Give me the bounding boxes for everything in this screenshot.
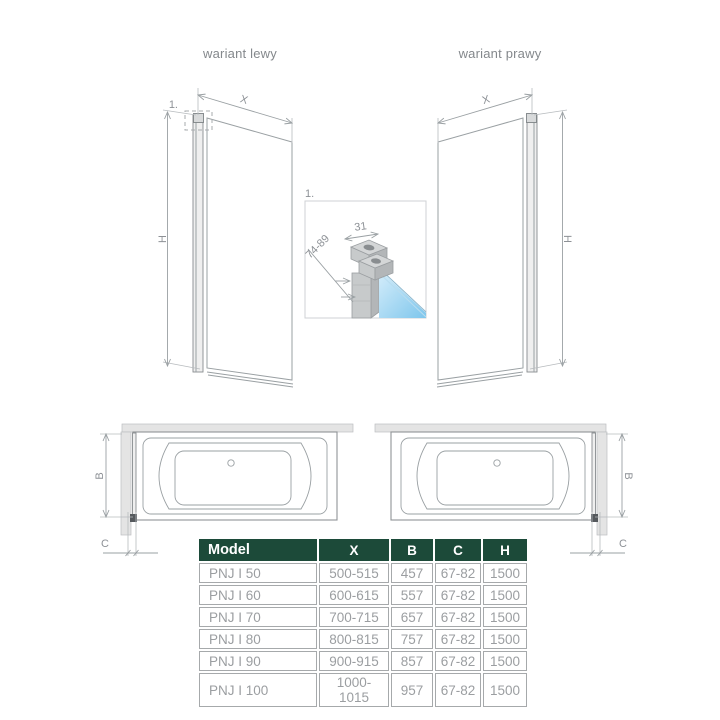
- tub-width-label: B: [622, 472, 634, 479]
- extension-line: [534, 110, 567, 115]
- spec-table: Model X B C H PNJ I 50 500-515 457 67-82…: [197, 537, 529, 709]
- c-cell: 67-82: [435, 673, 481, 707]
- spec-header-c: C: [435, 539, 481, 561]
- c-cell: 67-82: [435, 607, 481, 627]
- b-cell: 457: [391, 563, 433, 583]
- model-cell: PNJ I 70: [199, 607, 317, 627]
- spec-header-x: X: [319, 539, 389, 561]
- model-cell: PNJ I 80: [199, 629, 317, 649]
- profile-bar-front-face: [352, 273, 371, 318]
- bathtub-outline: [133, 432, 337, 520]
- bathtub-outline: [391, 432, 595, 520]
- x-cell: 900-915: [319, 651, 389, 671]
- left-variant-label: wariant lewy: [150, 46, 330, 61]
- width-dimension-label: X: [239, 93, 250, 107]
- table-row: PNJ I 100 1000-1015 957 67-82 1500: [199, 673, 527, 707]
- height-dimension-label: H: [157, 235, 169, 243]
- glass-panel: [207, 118, 292, 380]
- wall-profile: [527, 115, 537, 372]
- depth-range-label: 74-89: [304, 233, 332, 261]
- model-cell: PNJ I 90: [199, 651, 317, 671]
- detail-callout-label: 1.: [169, 99, 178, 111]
- x-cell: 1000-1015: [319, 673, 389, 707]
- x-cell: 700-715: [319, 607, 389, 627]
- wall-profile: [193, 115, 203, 372]
- wall-strip-top: [375, 424, 606, 432]
- technical-drawing-page: wariant lewy wariant prawy H X 1. H: [0, 0, 720, 720]
- c-cell: 67-82: [435, 563, 481, 583]
- table-row: PNJ I 50 500-515 457 67-82 1500: [199, 563, 527, 583]
- detail-ref-label: 1.: [305, 188, 314, 200]
- h-cell: 1500: [483, 607, 527, 627]
- table-row: PNJ I 90 900-915 857 67-82 1500: [199, 651, 527, 671]
- table-row: PNJ I 60 600-615 557 67-82 1500: [199, 585, 527, 605]
- h-cell: 1500: [483, 563, 527, 583]
- x-cell: 800-815: [319, 629, 389, 649]
- left-panel-drawing: H X 1.: [90, 85, 300, 400]
- wall-strip-top: [122, 424, 353, 432]
- spec-header-h: H: [483, 539, 527, 561]
- profile-width-dimension-line: [345, 234, 378, 239]
- b-cell: 857: [391, 651, 433, 671]
- spec-header-row: Model X B C H: [199, 539, 527, 561]
- glass-panel: [438, 118, 523, 380]
- model-cell: PNJ I 60: [199, 585, 317, 605]
- screen-profile-plan: [133, 433, 137, 519]
- wall-strip-side: [597, 432, 607, 535]
- c-cell: 67-82: [435, 629, 481, 649]
- table-row: PNJ I 80 800-815 757 67-82 1500: [199, 629, 527, 649]
- table-row: PNJ I 70 700-715 657 67-82 1500: [199, 607, 527, 627]
- b-cell: 657: [391, 607, 433, 627]
- offset-label: C: [101, 538, 109, 550]
- right-variant-label: wariant prawy: [410, 46, 590, 61]
- width-dimension-label: X: [481, 93, 492, 107]
- tub-width-label: B: [94, 472, 106, 479]
- b-cell: 557: [391, 585, 433, 605]
- right-panel-drawing: H X: [430, 85, 640, 400]
- x-cell: 600-615: [319, 585, 389, 605]
- profile-detail-drawing: 1. 31 74-89: [295, 185, 435, 325]
- h-cell: 1500: [483, 673, 527, 707]
- h-cell: 1500: [483, 651, 527, 671]
- x-cell: 500-515: [319, 563, 389, 583]
- c-cell: 67-82: [435, 585, 481, 605]
- model-cell: PNJ I 50: [199, 563, 317, 583]
- height-dimension-label: H: [561, 235, 573, 243]
- c-cell: 67-82: [435, 651, 481, 671]
- screen-profile-plan: [592, 433, 596, 519]
- h-cell: 1500: [483, 585, 527, 605]
- model-cell: PNJ I 100: [199, 673, 317, 707]
- spec-header-model: Model: [199, 539, 317, 561]
- b-cell: 757: [391, 629, 433, 649]
- wall-strip-side: [121, 432, 131, 535]
- spec-header-b: B: [391, 539, 433, 561]
- h-cell: 1500: [483, 629, 527, 649]
- offset-label: C: [619, 538, 627, 550]
- b-cell: 957: [391, 673, 433, 707]
- profile-width-label: 31: [354, 220, 368, 234]
